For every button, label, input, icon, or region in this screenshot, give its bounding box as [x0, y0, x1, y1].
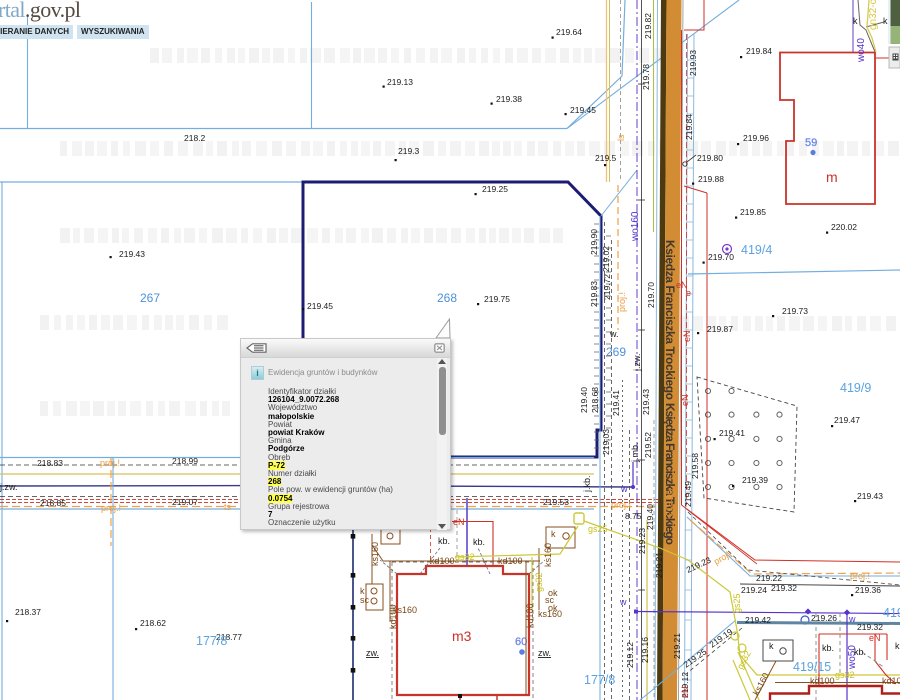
svg-text:218.37: 218.37 [15, 607, 41, 617]
svg-text:219.21: 219.21 [672, 633, 682, 659]
svg-text:219.82: 219.82 [643, 13, 653, 39]
svg-text:kb.: kb. [854, 647, 866, 657]
svg-text:177/8: 177/8 [196, 634, 227, 648]
svg-text:wo160: wo160 [630, 211, 641, 242]
svg-text:219.43: 219.43 [857, 491, 883, 501]
svg-text:419/15: 419/15 [793, 660, 831, 674]
svg-text:proj.!: proj.! [101, 503, 121, 513]
svg-text:219.45: 219.45 [307, 301, 333, 311]
svg-text:8.75: 8.75 [625, 511, 642, 521]
svg-text:219.07: 219.07 [172, 497, 198, 507]
svg-text:kd100: kd100 [810, 676, 835, 686]
svg-text:219.03: 219.03 [601, 429, 611, 455]
svg-text:219.43: 219.43 [119, 249, 145, 259]
svg-text:kb.: kb. [438, 536, 450, 546]
svg-text:220.02: 220.02 [831, 222, 857, 232]
svg-text:kd100: kd100 [498, 556, 523, 566]
svg-text:gs32: gs32 [455, 552, 475, 562]
svg-text:m3: m3 [452, 628, 472, 644]
svg-text:gs25: gs25 [588, 524, 608, 534]
svg-text:kb.: kb. [473, 537, 485, 547]
svg-text:j.kb.: j.kb. [582, 475, 592, 493]
svg-text:ls: ls [616, 134, 626, 141]
svg-text:219.41: 219.41 [719, 428, 745, 438]
svg-text:219.84: 219.84 [684, 114, 694, 140]
svg-text:219.40: 219.40 [645, 504, 655, 530]
svg-text:eN: eN [453, 517, 465, 527]
svg-text:kb.: kb. [822, 643, 834, 653]
svg-text:219.42: 219.42 [745, 615, 771, 625]
svg-text:j.mb.: j.mb. [630, 442, 640, 463]
svg-text:219.23: 219.23 [637, 528, 647, 554]
svg-text:177/8: 177/8 [584, 673, 615, 687]
svg-text:m: m [826, 169, 838, 185]
svg-text:219.70: 219.70 [646, 282, 656, 308]
svg-text:k: k [853, 16, 858, 26]
svg-text:219.32: 219.32 [771, 583, 797, 593]
svg-text:proj.!: proj.! [617, 292, 627, 312]
svg-text:kd100: kd100 [525, 603, 535, 628]
svg-text:419/4: 419/4 [741, 243, 772, 257]
svg-text:219.58: 219.58 [690, 453, 700, 479]
svg-text:219.32: 219.32 [857, 622, 883, 632]
svg-text:219.43: 219.43 [641, 389, 651, 415]
svg-text:gs32: gs32 [835, 670, 855, 680]
svg-text:219.96: 219.96 [743, 133, 769, 143]
svg-text:ks160: ks160 [370, 542, 380, 566]
svg-text:219.73: 219.73 [782, 306, 808, 316]
svg-text:proj.!: proj.! [850, 571, 870, 581]
svg-text:219.39: 219.39 [742, 475, 768, 485]
svg-text:219.90: 219.90 [589, 229, 599, 255]
svg-text:219.12: 219.12 [625, 642, 635, 668]
svg-text:j.zw.: j.zw. [632, 353, 642, 372]
svg-text:219.02: 219.02 [601, 246, 611, 272]
svg-text:269: 269 [606, 345, 626, 359]
svg-text:219.5: 219.5 [595, 153, 617, 163]
svg-text:219.46: 219.46 [664, 490, 674, 516]
svg-text:219.22: 219.22 [756, 573, 782, 583]
svg-text:eN: eN [869, 633, 881, 643]
svg-text:gn32-c: gn32-c [868, 0, 879, 30]
svg-text:gs32: gs32 [534, 572, 544, 592]
svg-text:219.21: 219.21 [654, 552, 664, 578]
svg-text:60: 60 [515, 636, 527, 648]
svg-text:219.26: 219.26 [811, 613, 837, 623]
svg-text:w.: w. [609, 329, 619, 339]
svg-text:218.85: 218.85 [40, 498, 66, 508]
svg-text:proj.!: proj.! [611, 500, 631, 510]
svg-text:419/9: 419/9 [840, 381, 871, 395]
svg-text:219.83: 219.83 [589, 281, 599, 307]
svg-text:kd10: kd10 [882, 676, 900, 686]
svg-text:219.53: 219.53 [543, 497, 569, 507]
svg-text:w: w [619, 597, 627, 607]
svg-text:219.45: 219.45 [570, 105, 596, 115]
svg-text:218.2: 218.2 [184, 133, 206, 143]
svg-text:219.49: 219.49 [683, 481, 693, 507]
svg-text:219.84: 219.84 [746, 46, 772, 56]
svg-text:419: 419 [883, 606, 900, 620]
svg-text:proj.!: proj.! [100, 458, 120, 468]
svg-text:218.99: 218.99 [172, 456, 198, 466]
svg-text:k: k [769, 641, 774, 651]
svg-text:219.40: 219.40 [579, 387, 589, 413]
svg-text:218.68: 218.68 [590, 387, 600, 413]
svg-text:219.75: 219.75 [484, 294, 510, 304]
svg-text:219.47: 219.47 [834, 415, 860, 425]
svg-text:e: e [686, 288, 691, 298]
svg-text:219.85: 219.85 [740, 207, 766, 217]
svg-text:zw.: zw. [538, 648, 551, 658]
svg-text:219.38: 219.38 [496, 94, 522, 104]
svg-text:219.3: 219.3 [398, 146, 420, 156]
svg-text:219.13: 219.13 [387, 77, 413, 87]
svg-text:219.88: 219.88 [698, 174, 724, 184]
svg-text:218.62: 218.62 [140, 618, 166, 628]
svg-text:gs25: gs25 [732, 593, 742, 613]
svg-text:wo40: wo40 [856, 38, 867, 63]
svg-text:ts: ts [224, 502, 232, 512]
svg-text:eN: eN [680, 686, 690, 698]
svg-text:ks160: ks160 [543, 543, 553, 567]
svg-text:267: 267 [140, 291, 160, 305]
svg-text:j.zw.: j.zw. [0, 482, 18, 492]
svg-text:w: w [848, 614, 856, 624]
svg-text:Księdza Franciszka Trockiego: Księdza Franciszka Trockiego [663, 403, 677, 545]
svg-text:kd100: kd100 [388, 604, 398, 629]
svg-text:218.83: 218.83 [37, 458, 63, 468]
svg-text:219.41: 219.41 [611, 390, 621, 416]
svg-text:219.25: 219.25 [482, 184, 508, 194]
svg-text:219.16: 219.16 [640, 637, 650, 663]
svg-text:w: w [620, 484, 628, 494]
svg-text:268: 268 [437, 291, 457, 305]
svg-text:219.36: 219.36 [855, 585, 881, 595]
svg-text:ok: ok [548, 603, 558, 613]
svg-text:219.70: 219.70 [708, 252, 734, 262]
svg-text:219.78: 219.78 [641, 64, 651, 90]
svg-text:219.80: 219.80 [697, 153, 723, 163]
svg-text:k: k [551, 529, 556, 539]
svg-text:219.64: 219.64 [556, 27, 582, 37]
svg-text:59: 59 [805, 137, 817, 149]
svg-text:Księdza Franciszka Trockiego: Księdza Franciszka Trockiego [663, 240, 677, 400]
svg-text:sc: sc [360, 595, 370, 605]
svg-text:219.87: 219.87 [707, 324, 733, 334]
svg-text:219.52: 219.52 [643, 432, 653, 458]
svg-text:eN: eN [682, 330, 692, 342]
svg-text:eN: eN [680, 394, 690, 406]
svg-text:kd100: kd100 [430, 556, 455, 566]
svg-text:219.93: 219.93 [688, 50, 698, 76]
svg-text:219.24: 219.24 [741, 585, 767, 595]
svg-text:k: k [895, 641, 900, 651]
